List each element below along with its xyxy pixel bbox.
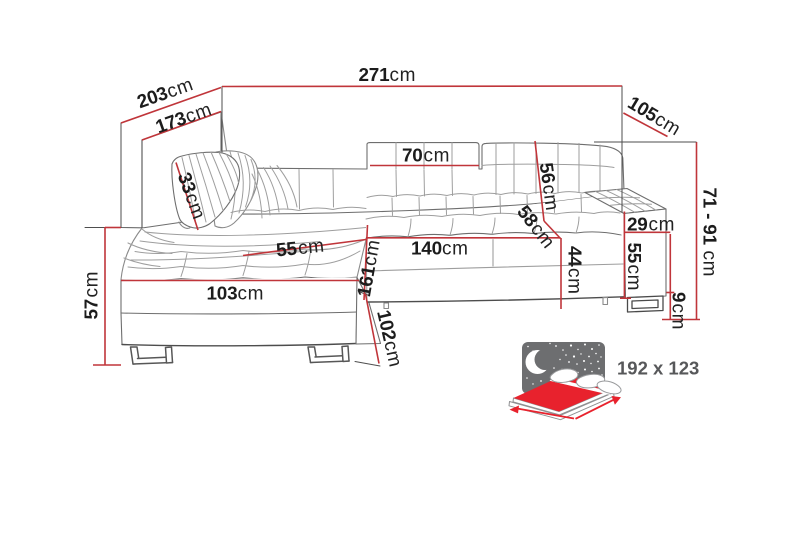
svg-text:cm: cm: [424, 146, 451, 167]
svg-text:cm: cm: [668, 304, 689, 331]
svg-text:55: 55: [623, 243, 644, 264]
svg-text:cm: cm: [564, 268, 585, 295]
svg-text:cm: cm: [538, 183, 562, 212]
svg-text:cm: cm: [390, 65, 417, 86]
svg-text:44: 44: [564, 246, 585, 267]
svg-text:271: 271: [359, 65, 390, 86]
svg-text:cm: cm: [623, 265, 644, 292]
svg-text:192 x 123: 192 x 123: [617, 358, 699, 379]
svg-text:cm: cm: [649, 215, 676, 236]
svg-text:cm: cm: [82, 271, 103, 298]
svg-text:cm: cm: [238, 284, 265, 305]
svg-text:cm: cm: [297, 236, 326, 260]
svg-text:140: 140: [411, 238, 442, 259]
svg-text:55: 55: [275, 238, 298, 261]
svg-text:71 - 91: 71 - 91: [699, 188, 720, 245]
svg-text:29: 29: [627, 215, 648, 236]
svg-text:9: 9: [668, 292, 689, 302]
svg-text:cm: cm: [442, 238, 469, 259]
svg-text:57: 57: [82, 299, 103, 320]
svg-text:103: 103: [207, 284, 238, 305]
svg-text:70: 70: [402, 146, 423, 167]
svg-text:56: 56: [535, 161, 559, 184]
svg-text:cm: cm: [699, 251, 720, 278]
